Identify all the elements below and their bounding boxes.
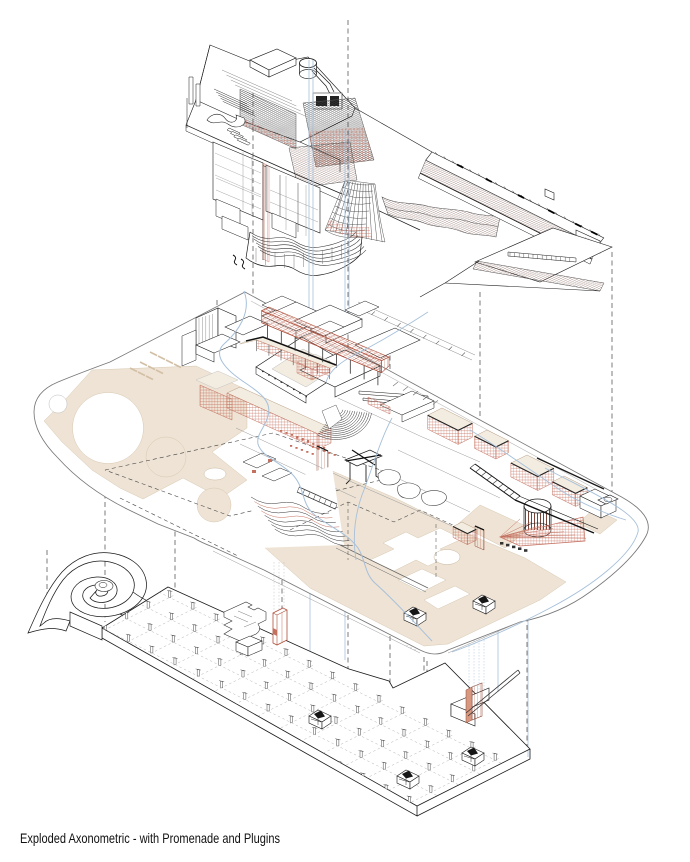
svg-text:Exploded Axonometric - with Pr: Exploded Axonometric - with Promenade an… bbox=[20, 830, 280, 846]
